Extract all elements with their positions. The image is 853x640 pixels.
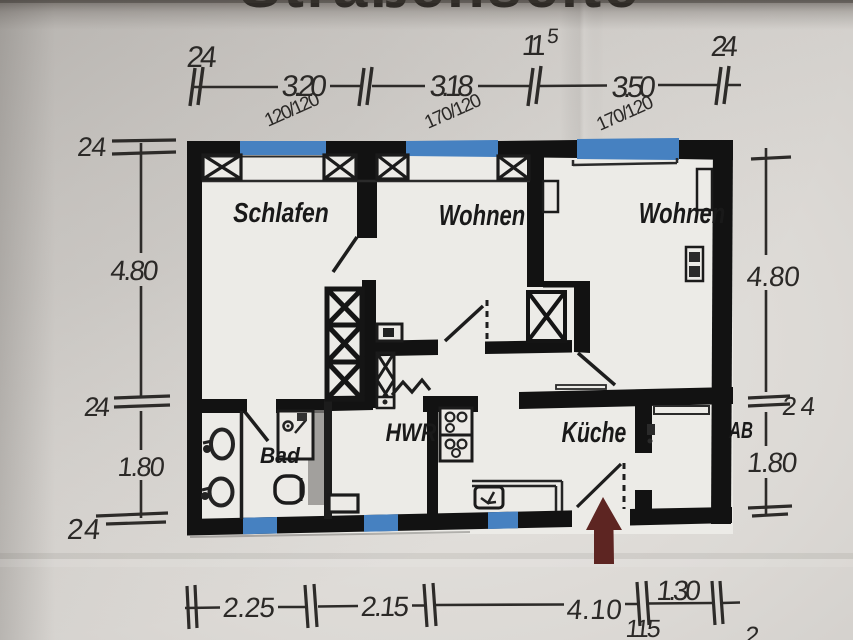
svg-text:11: 11 [520,30,547,62]
svg-text:5: 5 [546,25,560,48]
svg-text:Wohnen: Wohnen [439,200,525,232]
svg-text:1.30: 1.30 [655,575,702,606]
svg-text:Bad: Bad [260,443,301,469]
svg-text:Küche: Küche [562,417,627,449]
svg-text:24: 24 [76,131,108,162]
svg-text:HWR: HWR [386,418,437,446]
svg-text:24: 24 [709,31,739,63]
svg-text:Straßenseite: Straßenseite [240,0,641,21]
svg-text:4.10: 4.10 [565,594,623,625]
svg-text:2.25: 2.25 [222,592,277,623]
svg-text:Wohnen: Wohnen [639,198,725,230]
svg-text:24: 24 [185,41,218,74]
svg-text:115: 115 [624,615,662,640]
svg-text:2.15: 2.15 [360,591,411,622]
svg-text:24: 24 [66,514,102,546]
svg-text:AB: AB [728,418,753,443]
svg-text:4.80: 4.80 [745,261,801,292]
svg-text:1.80: 1.80 [746,447,799,478]
svg-text:24: 24 [83,391,112,422]
svg-text:1.80: 1.80 [116,451,166,482]
svg-text:2: 2 [744,622,761,640]
svg-text:Schlafen: Schlafen [233,198,329,229]
svg-text:4.80: 4.80 [109,255,160,286]
